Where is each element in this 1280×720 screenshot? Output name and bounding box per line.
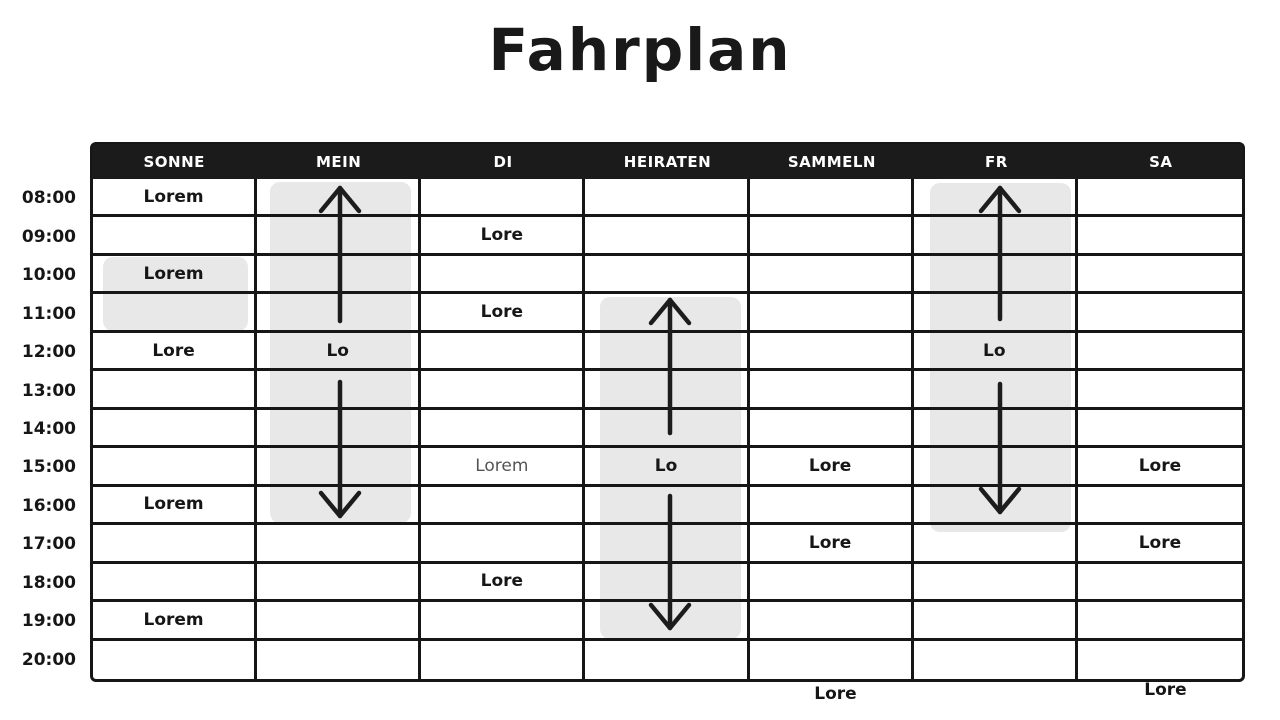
cell-label: Lorem <box>144 264 204 284</box>
cell-17:00-mein <box>257 525 421 563</box>
cell-20:00-fr <box>914 641 1078 679</box>
route-down-arrow-icon-heiraten <box>644 494 696 632</box>
column-header-di: DI <box>421 144 585 179</box>
time-label-0800: 08:00 <box>0 179 76 218</box>
cell-19:00-sammeln <box>750 602 914 640</box>
cell-18:00-di: Lore <box>421 564 585 602</box>
footer-label-sammeln: Lore <box>753 684 918 704</box>
cell-08:00-heiraten <box>585 179 749 217</box>
route-down-arrow-icon-fr <box>974 382 1026 516</box>
cell-11:00-sa <box>1078 294 1242 332</box>
cell-12:00-sammeln <box>750 333 914 371</box>
route-up-arrow-icon-fr <box>974 184 1026 322</box>
cell-16:00-sa <box>1078 487 1242 525</box>
cell-17:00-sa: Lore <box>1078 525 1242 563</box>
cell-19:00-di <box>421 602 585 640</box>
cell-label: Lo <box>655 456 678 476</box>
cell-15:00-sammeln: Lore <box>750 448 914 486</box>
cell-09:00-sonne <box>93 217 257 255</box>
cell-19:00-mein <box>257 602 421 640</box>
cell-20:00-sammeln <box>750 641 914 679</box>
cell-label: Lore <box>1139 456 1181 476</box>
route-up-arrow-icon-mein <box>314 184 366 324</box>
cell-11:00-di: Lore <box>421 294 585 332</box>
cell-18:00-fr <box>914 564 1078 602</box>
time-label-1800: 18:00 <box>0 564 76 603</box>
cell-12:00-fr: Lo <box>914 333 1078 371</box>
time-column: 08:0009:0010:0011:0012:0013:0014:0015:00… <box>0 179 76 680</box>
cell-20:00-mein <box>257 641 421 679</box>
column-header-heiraten: HEIRATEN <box>585 144 749 179</box>
column-header-sa: SA <box>1079 144 1243 179</box>
column-header-label: SAMMELN <box>788 153 876 171</box>
cell-20:00-sonne <box>93 641 257 679</box>
cell-label: Lore <box>481 225 523 245</box>
cell-08:00-di <box>421 179 585 217</box>
cell-14:00-di <box>421 410 585 448</box>
time-label-1700: 17:00 <box>0 525 76 564</box>
column-header-label: MEIN <box>316 153 361 171</box>
time-label-1900: 19:00 <box>0 602 76 641</box>
route-up-arrow-icon-heiraten <box>644 296 696 436</box>
cell-17:00-sonne <box>93 525 257 563</box>
column-header-label: SONNE <box>144 153 205 171</box>
route-down-arrow-icon-mein <box>314 380 366 520</box>
cell-11:00-sammeln <box>750 294 914 332</box>
cell-11:00-sonne <box>93 294 257 332</box>
cell-13:00-sonne <box>93 371 257 409</box>
cell-08:00-sa <box>1078 179 1242 217</box>
cell-10:00-heiraten <box>585 256 749 294</box>
cell-10:00-sa <box>1078 256 1242 294</box>
cell-10:00-di <box>421 256 585 294</box>
column-header-sammeln: SAMMELN <box>750 144 914 179</box>
column-header-mein: MEIN <box>256 144 420 179</box>
cell-09:00-di: Lore <box>421 217 585 255</box>
footer-label-sa: Lore <box>1083 680 1248 700</box>
cell-label: Lorem <box>144 187 204 207</box>
cell-10:00-sammeln <box>750 256 914 294</box>
cell-09:00-sa <box>1078 217 1242 255</box>
cell-16:00-sammeln <box>750 487 914 525</box>
cell-19:00-sa <box>1078 602 1242 640</box>
column-header-label: SA <box>1149 153 1172 171</box>
column-header-fr: FR <box>914 144 1078 179</box>
column-header-label: FR <box>985 153 1008 171</box>
cell-18:00-sa <box>1078 564 1242 602</box>
cell-20:00-di <box>421 641 585 679</box>
schedule-page: Fahrplan 08:0009:0010:0011:0012:0013:001… <box>0 0 1280 720</box>
cell-13:00-sa <box>1078 371 1242 409</box>
cell-15:00-di: Lorem <box>421 448 585 486</box>
cell-label: Lorem <box>144 494 204 514</box>
cell-18:00-sonne <box>93 564 257 602</box>
cell-label: Lorem <box>144 610 204 630</box>
time-label-1200: 12:00 <box>0 333 76 372</box>
cell-label: Lo <box>983 341 1006 361</box>
cell-16:00-sonne: Lorem <box>93 487 257 525</box>
cell-label: Lore <box>152 341 194 361</box>
cell-12:00-sa <box>1078 333 1242 371</box>
cell-18:00-sammeln <box>750 564 914 602</box>
time-label-1600: 16:00 <box>0 487 76 526</box>
cell-label: Lore <box>809 533 851 553</box>
cell-17:00-sammeln: Lore <box>750 525 914 563</box>
cell-08:00-sonne: Lorem <box>93 179 257 217</box>
cell-16:00-di <box>421 487 585 525</box>
column-header-sonne: SONNE <box>92 144 256 179</box>
cell-14:00-sa <box>1078 410 1242 448</box>
cell-13:00-di <box>421 371 585 409</box>
cell-label: Lore <box>809 456 851 476</box>
cell-12:00-di <box>421 333 585 371</box>
cell-12:00-sonne: Lore <box>93 333 257 371</box>
cell-label: Lore <box>481 302 523 322</box>
cell-19:00-sonne: Lorem <box>93 602 257 640</box>
cell-17:00-fr <box>914 525 1078 563</box>
cell-09:00-sammeln <box>750 217 914 255</box>
cell-label: Lore <box>481 571 523 591</box>
time-label-2000: 20:00 <box>0 641 76 680</box>
cell-17:00-di <box>421 525 585 563</box>
page-title: Fahrplan <box>0 16 1280 84</box>
cell-15:00-sonne <box>93 448 257 486</box>
cell-label: Lore <box>1139 533 1181 553</box>
column-header-label: DI <box>494 153 513 171</box>
time-label-1500: 15:00 <box>0 448 76 487</box>
cell-label: Lorem <box>475 456 528 476</box>
time-label-0900: 09:00 <box>0 217 76 256</box>
cell-15:00-sa: Lore <box>1078 448 1242 486</box>
cell-19:00-fr <box>914 602 1078 640</box>
cell-13:00-sammeln <box>750 371 914 409</box>
time-label-1300: 13:00 <box>0 371 76 410</box>
cell-15:00-heiraten: Lo <box>585 448 749 486</box>
time-label-1100: 11:00 <box>0 294 76 333</box>
cell-20:00-sa <box>1078 641 1242 679</box>
time-label-1000: 10:00 <box>0 256 76 295</box>
cell-14:00-sonne <box>93 410 257 448</box>
cell-20:00-heiraten <box>585 641 749 679</box>
cell-08:00-sammeln <box>750 179 914 217</box>
column-header-label: HEIRATEN <box>624 153 711 171</box>
cell-12:00-mein: Lo <box>257 333 421 371</box>
cell-09:00-heiraten <box>585 217 749 255</box>
cell-10:00-sonne: Lorem <box>93 256 257 294</box>
time-label-1400: 14:00 <box>0 410 76 449</box>
cell-label: Lo <box>326 341 349 361</box>
cell-14:00-sammeln <box>750 410 914 448</box>
table-header-row: SONNEMEINDIHEIRATENSAMMELNFRSA <box>92 144 1243 179</box>
cell-18:00-mein <box>257 564 421 602</box>
